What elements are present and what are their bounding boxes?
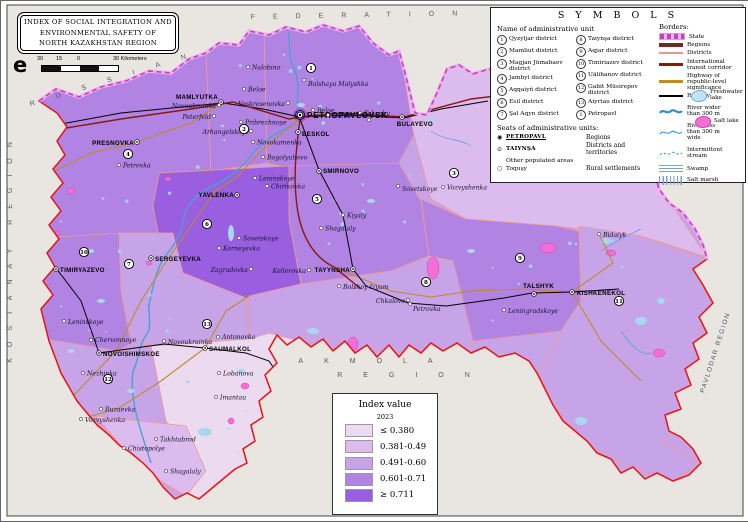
settlement-label: Peterfeld <box>181 114 211 121</box>
legend-swatch-transit <box>659 63 683 66</box>
settlement-label: Voskresenovka <box>238 101 285 108</box>
scale-tick: 30 <box>37 56 43 62</box>
symbols-title: S Y M B O L S <box>491 10 745 21</box>
borders-legend: Borders: StateRegionsDistrictsInternatio… <box>659 23 743 187</box>
index-class-swatch <box>345 489 373 502</box>
seat-symbol-icon: ○ <box>497 165 506 172</box>
district-badge-number: 13 <box>203 322 211 328</box>
seat-dot-core <box>352 268 354 270</box>
settlement-label: Petrovka <box>412 306 441 313</box>
border-legend-item: Salt marsh <box>659 176 743 185</box>
settlement-label: Chistopolye <box>128 446 165 453</box>
district-number-icon: 5 <box>497 86 507 96</box>
village-dot <box>265 184 268 187</box>
village-dot <box>89 338 92 341</box>
seat-legend-item: ○ToquşyRural settlements <box>497 165 655 172</box>
village-dot <box>246 65 249 68</box>
village-dot <box>341 213 344 216</box>
settlement-label: Poludino <box>339 112 368 119</box>
border-legend-label: Swamp <box>687 166 708 172</box>
settlement-label: Vozvyshenka <box>447 185 487 192</box>
village-dot <box>337 284 340 287</box>
index-class-label: ≥ 0.711 <box>380 490 414 500</box>
settlement-label: Bolshoy Izyum <box>342 284 389 291</box>
district-legend-item: 8Taiynşa district <box>576 35 655 46</box>
village-dot <box>597 232 600 235</box>
settlement-label: Novoukrainka <box>171 103 216 110</box>
district-number-icon: 11 <box>576 71 586 81</box>
seat-dot-core <box>297 131 299 133</box>
border-legend-label: Intermittent stream <box>687 147 743 159</box>
legend-swatch-saltmarsh <box>659 176 683 185</box>
settlement-label: Petrovka <box>122 163 151 170</box>
settlement-label: Novoukrainka <box>167 339 212 346</box>
seat-dot-core <box>136 141 138 143</box>
legend-swatch-highway <box>659 80 683 83</box>
settlement-label: TALSHYK <box>523 283 554 290</box>
village-dot <box>251 140 254 143</box>
border-legend-label: Highway of republic-level significance <box>687 73 743 91</box>
village-dot <box>307 268 310 271</box>
seat-dot-core <box>318 170 320 172</box>
village-dot <box>99 407 102 410</box>
district-number-icon: 4 <box>497 74 507 84</box>
village-dot <box>408 302 411 305</box>
village-dot <box>164 469 167 472</box>
index-class-swatch <box>345 457 373 470</box>
settlement-label: Tokushy <box>364 111 390 118</box>
legend-swatch-intermittent <box>659 143 683 162</box>
seat-dot-core <box>204 347 206 349</box>
legend-swatch-river-wide <box>659 101 683 120</box>
seats-heading: Seats of administrative units: <box>497 124 655 132</box>
district-legend-item: 1Qyzyljar district <box>497 35 576 46</box>
seat-description: Rural settlements <box>586 165 640 172</box>
settlement-label: Korneyevka <box>222 246 260 253</box>
index-class-label: 0.491-0.60 <box>380 458 426 468</box>
index-class-label: ≤ 0.380 <box>380 426 414 436</box>
seat-dot-core <box>401 116 403 118</box>
village-dot <box>286 101 289 104</box>
settlement-label: NOVOISHIMSKOE <box>103 351 160 358</box>
settlement-label: PRESNOVKA <box>92 140 134 147</box>
border-legend-label: State <box>689 34 704 40</box>
river-wave-icon <box>659 107 683 116</box>
district-legend-item: 11Uälihanov district <box>576 71 655 82</box>
district-legend-item: IPetropavl <box>576 110 655 121</box>
legend-swatch-districts <box>659 52 683 54</box>
settlement-label: MAMLYUTKA <box>176 94 218 101</box>
village-dot <box>319 226 322 229</box>
village-dot <box>261 155 264 158</box>
district-column-1: 1Qyzyljar district2Mamliut district3Magj… <box>497 35 576 122</box>
village-dot <box>217 371 220 374</box>
district-legend-label: Aiyrtau district <box>588 98 633 105</box>
district-number-icon: 9 <box>576 47 586 57</box>
settlement-label: Imantau <box>219 395 246 402</box>
seat-name: Other populated areas <box>506 158 586 164</box>
settlement-label: YAVLENKA <box>199 192 235 199</box>
seat-symbol-icon: ⊙ <box>497 146 506 153</box>
seat-dot-core <box>150 257 152 259</box>
border-legend-label: International transit corridor <box>687 59 743 71</box>
seat-name: PETROPAVL <box>506 134 586 140</box>
district-legend-label: Timiriazev district <box>588 59 643 66</box>
settlement-label: Chervonnoye <box>95 337 137 344</box>
village-dot <box>367 118 370 121</box>
index-class-swatch <box>345 473 373 486</box>
seat-legend-item: ⊙TAIYNŞADistricts and territories <box>497 142 655 156</box>
village-dot <box>242 87 245 90</box>
settlement-label: Bidaiyk <box>602 232 627 239</box>
scale-bar-segments <box>41 65 119 72</box>
scale-tick: 0 <box>77 56 80 62</box>
seat-dot-core <box>98 352 100 354</box>
village-dot <box>249 267 252 270</box>
settlement-label: Leninskoye <box>67 319 104 326</box>
district-legend-item: 5Aqqaiyñ district <box>497 86 576 97</box>
legend-swatch-river-narrow <box>659 122 683 141</box>
settlement-label: SERGEYEVKA <box>155 256 201 263</box>
seat-dot-core <box>220 101 222 103</box>
village-dot <box>326 113 329 116</box>
legend-swatch-regions <box>659 43 683 47</box>
district-legend-item: 4Jambyl district <box>497 74 576 85</box>
settlement-label: Bogolyubovo <box>266 155 308 162</box>
district-legend-label: Gabit Müsirepov district <box>588 83 655 96</box>
village-dot <box>311 108 314 111</box>
index-class-row: 0.381-0.49 <box>345 440 437 453</box>
settlement-label: Kiyaly <box>346 213 367 220</box>
capital-dot-core <box>299 114 301 116</box>
district-number-icon: 3 <box>497 59 507 69</box>
village-dot <box>502 308 505 311</box>
admin-units-legend: Name of administrative unit 1Qyzyljar di… <box>497 25 655 172</box>
scale-end-label: 30 Kilometers <box>113 56 147 62</box>
district-number-icon: 13 <box>576 98 586 108</box>
index-value-legend: Index value 2023 ≤ 0.3800.381-0.490.491-… <box>332 393 438 515</box>
village-dot <box>154 437 157 440</box>
village-dot <box>237 236 240 239</box>
district-badge-number: 6 <box>205 222 209 228</box>
settlement-label: Sovetskoye <box>402 186 438 193</box>
border-legend-label: Regions <box>687 42 710 48</box>
village-dot <box>122 446 125 449</box>
freshwater-lake-label: Freshwater lake <box>710 90 743 102</box>
scale-tick: 15 <box>56 56 62 62</box>
district-legend-item: 6Esil district <box>497 98 576 109</box>
settlement-label: Takhtabrod <box>160 437 196 444</box>
seat-legend-item: ◉PETROPAVLRegions <box>497 134 655 141</box>
village-dot <box>217 103 220 106</box>
village-dot <box>406 298 409 301</box>
index-class-swatch <box>345 424 373 437</box>
village-dot <box>79 417 82 420</box>
village-dot <box>396 184 399 187</box>
village-dot <box>249 129 252 132</box>
settlement-label: Sovetskoye <box>243 236 279 243</box>
settlement-label: Zagradovka <box>210 267 249 274</box>
district-number-icon: 8 <box>576 35 586 45</box>
settlement-label: KISHKENEKOL <box>577 290 625 297</box>
settlement-label: TAYYNSHA <box>315 267 351 274</box>
map-title-line3: NORTH KAZAKHSTAN REGION <box>39 38 157 49</box>
settlement-label: Novokamenka <box>256 140 302 147</box>
district-legend-item: 7Şal Aqyn district <box>497 110 576 121</box>
district-legend-label: Petropavl <box>588 110 616 117</box>
district-badge-number: 2 <box>242 127 246 133</box>
district-legend-label: Esil district <box>509 98 543 105</box>
district-legend-label: Uälihanov district <box>588 71 642 78</box>
freshwater-lake-legend: Freshwater lake <box>691 90 741 102</box>
settlement-label: Shagalaly <box>170 469 201 476</box>
village-dot <box>212 114 215 117</box>
neighbor-region-label: KOSTANAY REGION <box>7 131 14 363</box>
scale-bar: e 30 15 0 30 Kilometers <box>11 53 161 79</box>
settlement-label: Pribrezhnoye <box>244 120 287 127</box>
village-dot <box>81 371 84 374</box>
settlement-label: Antonovka <box>221 334 256 341</box>
district-number-icon: 6 <box>497 98 507 108</box>
district-legend-item: 9Aqjar district <box>576 47 655 58</box>
admin-units-heading: Name of administrative unit <box>497 25 655 33</box>
salt-lake-legend: Salt lake <box>695 116 745 128</box>
legend-swatch-railway <box>659 95 683 97</box>
village-dot <box>62 319 65 322</box>
index-class-row: 0.491-0.60 <box>345 457 437 470</box>
village-dot <box>253 176 256 179</box>
district-number-icon: I <box>576 110 586 120</box>
settlement-label: TIMIRYAZEVO <box>60 267 105 274</box>
seat-description: Regions <box>586 134 610 141</box>
village-dot <box>302 78 305 81</box>
district-number-icon: 7 <box>497 110 507 120</box>
seats-legend: Seats of administrative units: ◉PETROPAV… <box>497 124 655 173</box>
map-title-line2: ENVIRONMENTAL SAFETY OF <box>40 28 156 39</box>
district-badge-number: 5 <box>315 197 319 203</box>
map-title-line1: INDEX OF SOCIAL INTEGRATION AND <box>24 17 172 28</box>
border-legend-item: International transit corridor <box>659 59 743 71</box>
district-badge-number: 9 <box>518 256 522 262</box>
index-legend-year: 2023 <box>333 413 437 421</box>
district-badge-number: 1 <box>309 66 313 72</box>
border-legend-item: Regions <box>659 42 743 48</box>
village-dot <box>217 246 220 249</box>
neighbor-region-label: AKMOLA <box>298 358 453 365</box>
border-legend-item: Highway of republic-level significance <box>659 73 743 91</box>
settlement-label: Chirikovka <box>271 184 305 191</box>
salt-lake-label: Salt lake <box>714 119 739 125</box>
map-title-box: INDEX OF SOCIAL INTEGRATION AND ENVIRONM… <box>17 12 179 54</box>
seat-dot-core <box>55 268 57 270</box>
settlement-label: Lobanova <box>222 371 254 378</box>
seat-name: Toquşy <box>506 166 586 172</box>
district-legend-label: Aqjar district <box>588 47 627 54</box>
district-number-icon: 1 <box>497 35 507 45</box>
district-legend-label: Taiynşa district <box>588 35 634 42</box>
district-legend-item: 13Aiyrtau district <box>576 98 655 109</box>
neighbor-region-label: REGION <box>337 372 491 379</box>
district-legend-label: Magjan Jūmabaev district <box>509 59 576 72</box>
district-badge-number: 11 <box>615 299 623 305</box>
district-legend-item: 12Gabit Müsirepov district <box>576 83 655 96</box>
settlement-label: Leningradskoye <box>507 308 558 315</box>
settlement-label: Nalobino <box>251 65 281 72</box>
map-sheet: RUSSIANFEDERATIONKOSTANAY REGIONPAVLODAR… <box>0 0 748 522</box>
settlement-label: Kellerovka <box>272 268 307 275</box>
index-class-row: ≤ 0.380 <box>345 424 437 437</box>
seat-description: Districts and territories <box>586 142 655 156</box>
district-number-icon: 12 <box>576 83 586 93</box>
village-dot <box>216 335 219 338</box>
index-class-row: ≥ 0.711 <box>345 489 437 502</box>
settlement-label: SAUMALKOL <box>209 346 251 353</box>
seat-dot-core <box>236 194 238 196</box>
district-legend-item: 10Timiriazev district <box>576 59 655 70</box>
district-legend-label: Jambyl district <box>509 74 553 81</box>
district-legend-label: Aqqaiyñ district <box>509 86 557 93</box>
district-number-icon: 2 <box>497 47 507 57</box>
border-legend-item: Districts <box>659 50 743 56</box>
village-dot <box>162 339 165 342</box>
settlement-label: Beloe <box>247 87 266 94</box>
river-wave-icon <box>659 149 683 158</box>
seat-name: TAIYNŞA <box>506 146 586 152</box>
symbols-panel: S Y M B O L S Name of administrative uni… <box>490 7 746 183</box>
village-dot <box>239 120 242 123</box>
index-legend-title: Index value <box>333 400 437 410</box>
north-compass-glyph: e <box>13 53 27 77</box>
seat-dot-core <box>571 291 573 293</box>
settlement-label: Bolshaya Malyshka <box>307 81 369 88</box>
settlement-label: Chkalovo <box>376 298 405 305</box>
district-badge-number: 3 <box>452 171 456 177</box>
village-dot <box>117 163 120 166</box>
settlement-label: Nezhinka <box>86 371 117 378</box>
district-badge-number: 7 <box>127 262 131 268</box>
border-legend-item: State <box>659 33 743 40</box>
settlement-label: Vozvyshenka <box>85 417 125 424</box>
settlement-label: SMIRNOVO <box>323 168 359 175</box>
district-legend-label: Mamliut district <box>509 47 557 54</box>
river-wave-icon <box>659 128 683 137</box>
borders-heading: Borders: <box>659 23 743 31</box>
seat-dot-core <box>533 293 535 295</box>
settlement-label: Shagalaly <box>325 226 356 233</box>
index-class-swatch <box>345 440 373 453</box>
district-badge-number: 12 <box>104 377 112 383</box>
district-legend-item: 2Mamliut district <box>497 47 576 58</box>
district-badge-number: 10 <box>80 250 88 256</box>
district-number-icon: 10 <box>576 59 586 69</box>
district-legend-label: Şal Aqyn district <box>509 110 559 117</box>
district-legend-item: 3Magjan Jūmabaev district <box>497 59 576 72</box>
border-legend-label: Districts <box>687 50 712 56</box>
border-legend-item: Swamp <box>659 165 743 174</box>
index-class-row: 0.601-0.71 <box>345 473 437 486</box>
district-legend-label: Qyzyljar district <box>509 35 557 42</box>
border-legend-label: River wider than 300 m <box>687 105 725 117</box>
seat-legend-item: Other populated areas <box>497 158 655 164</box>
index-class-label: 0.381-0.49 <box>380 442 426 452</box>
legend-swatch-state <box>659 33 685 40</box>
settlement-label: BESKOL <box>302 131 330 138</box>
village-dot <box>214 395 217 398</box>
settlement-label: BULAYEVO <box>397 121 433 128</box>
border-legend-item: Intermittent stream <box>659 143 743 162</box>
border-legend-label: Salt marsh <box>687 177 718 183</box>
salt-lake-icon <box>695 116 711 128</box>
settlement-label: Ruzaevka <box>104 407 135 414</box>
index-class-label: 0.601-0.71 <box>380 474 426 484</box>
district-badge-number: 8 <box>424 280 428 286</box>
village-dot <box>441 185 444 188</box>
legend-swatch-swamp <box>659 165 683 174</box>
district-name-columns: 1Qyzyljar district2Mamliut district3Magj… <box>497 35 655 122</box>
district-column-2: 8Taiynşa district9Aqjar district10Timiri… <box>576 35 655 122</box>
district-badge-number: 4 <box>126 152 130 158</box>
seat-symbol-icon: ◉ <box>497 134 506 141</box>
settlement-label: Leninskoye <box>258 176 295 183</box>
freshwater-lake-icon <box>691 90 707 102</box>
